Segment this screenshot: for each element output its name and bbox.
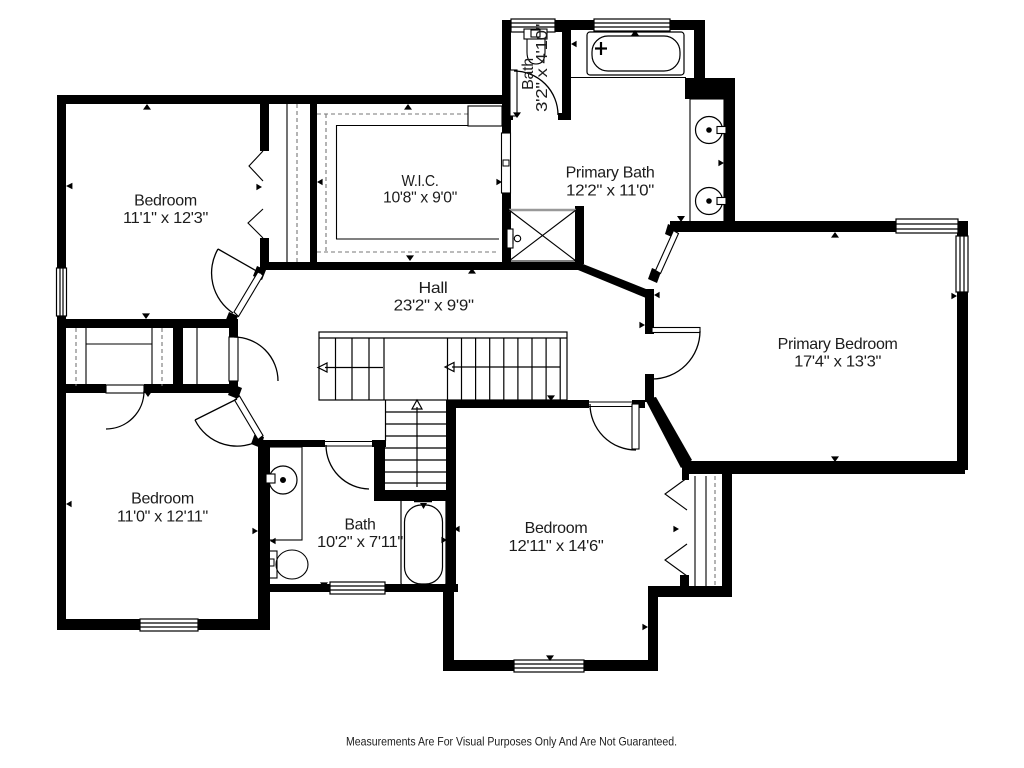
svg-text:Primary Bedroom: Primary Bedroom [778,336,898,353]
svg-text:Bath: Bath [345,517,376,534]
svg-text:W.I.C.: W.I.C. [402,173,439,190]
svg-text:10'8" x 9'0": 10'8" x 9'0" [383,190,457,207]
svg-text:Primary Bath: Primary Bath [566,165,655,182]
svg-text:Bedroom: Bedroom [525,520,588,537]
svg-text:10'2" x 7'11": 10'2" x 7'11" [317,534,403,551]
svg-text:12'11" x 14'6": 12'11" x 14'6" [509,538,604,555]
svg-text:3'2" x 4'10": 3'2" x 4'10" [534,24,551,112]
svg-text:Bedroom: Bedroom [131,491,194,508]
svg-text:11'0" x 12'11": 11'0" x 12'11" [117,509,208,526]
svg-text:Measurements Are For Visual Pu: Measurements Are For Visual Purposes Onl… [346,735,677,749]
svg-text:Bedroom: Bedroom [134,193,197,210]
svg-text:17'4" x 13'3": 17'4" x 13'3" [794,354,881,371]
svg-text:12'2" x 11'0": 12'2" x 11'0" [566,183,654,200]
svg-text:Hall: Hall [419,280,448,297]
svg-text:11'1" x 12'3": 11'1" x 12'3" [123,210,208,227]
svg-text:23'2" x 9'9": 23'2" x 9'9" [394,298,474,315]
